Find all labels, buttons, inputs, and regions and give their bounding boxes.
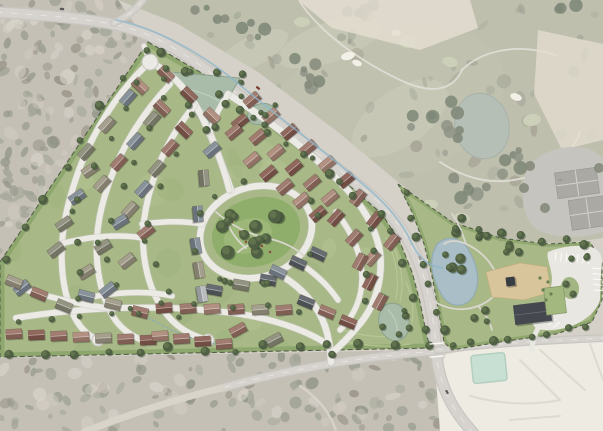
tree-highlight	[388, 228, 392, 232]
tree-highlight	[453, 226, 457, 230]
tree-highlight	[570, 291, 574, 295]
tree-highlight	[425, 281, 429, 285]
tree-highlight	[451, 343, 455, 347]
tree-highlight	[231, 213, 236, 218]
tree-highlight	[212, 194, 215, 197]
tree-highlight	[109, 136, 112, 139]
house	[73, 332, 91, 344]
tree-highlight	[237, 107, 241, 111]
tree-highlight	[337, 179, 341, 183]
crosswalk-mark	[430, 356, 443, 357]
house	[276, 304, 294, 317]
tree-highlight	[233, 350, 236, 353]
tree-highlight	[476, 227, 480, 231]
tree-highlight	[273, 103, 276, 106]
tree-highlight	[250, 221, 257, 228]
tree-highlight	[128, 306, 131, 309]
tree-highlight	[410, 294, 415, 299]
tree-highlight	[192, 249, 196, 253]
tree-highlight	[456, 254, 462, 260]
house	[95, 333, 113, 345]
tree-highlight	[182, 68, 187, 73]
tree-highlight	[269, 211, 276, 218]
tree-highlight	[498, 229, 503, 234]
tree-highlight	[241, 179, 245, 183]
tree-highlight	[3, 256, 7, 260]
tree-highlight	[583, 324, 587, 328]
tree-highlight	[517, 232, 522, 237]
tree-highlight	[77, 314, 80, 317]
tree-highlight	[240, 231, 246, 237]
tree-highlight	[447, 265, 451, 269]
tree-highlight	[124, 106, 127, 109]
tree-highlight	[121, 183, 125, 187]
tree-highlight	[92, 163, 96, 167]
tree-highlight	[76, 296, 79, 299]
tree-highlight	[434, 310, 438, 314]
tree-highlight	[326, 170, 331, 175]
tree-highlight	[505, 337, 509, 341]
tree-highlight	[563, 281, 567, 285]
tree-highlight	[580, 241, 585, 246]
tree-highlight	[197, 211, 201, 215]
tree-highlight	[239, 94, 242, 97]
tree-highlight	[188, 69, 191, 72]
tree-highlight	[164, 343, 169, 348]
courtyard-planting	[549, 292, 552, 295]
tree-highlight	[77, 270, 81, 274]
courtyard-planting	[541, 288, 544, 291]
tree-highlight	[506, 244, 511, 249]
tree-highlight	[544, 332, 548, 336]
park-shrub	[245, 241, 248, 244]
scene-canvas	[0, 0, 603, 431]
tree-highlight	[310, 156, 313, 159]
crosswalk-mark	[430, 343, 443, 344]
house	[204, 303, 222, 316]
tree-highlight	[96, 102, 101, 107]
tree-highlight	[380, 324, 384, 328]
tree-highlight	[315, 213, 318, 216]
tree-highlight	[145, 221, 149, 225]
house	[216, 338, 234, 350]
tree-highlight	[114, 283, 117, 286]
tree-highlight	[239, 71, 243, 75]
tree-highlight	[476, 234, 479, 237]
tree-highlight	[106, 349, 110, 353]
tree-highlight	[186, 102, 190, 106]
tree-highlight	[5, 351, 10, 356]
tree-highlight	[264, 129, 268, 133]
tree-highlight	[297, 343, 302, 348]
tree-highlight	[504, 249, 508, 253]
tree-highlight	[212, 124, 216, 128]
tree-highlight	[371, 248, 375, 252]
tree-highlight	[158, 184, 161, 187]
tree-highlight	[399, 260, 404, 265]
tree-highlight	[349, 193, 353, 197]
tree-highlight	[402, 308, 405, 311]
tree-highlight	[70, 209, 73, 212]
tree-highlight	[218, 277, 221, 280]
tree-highlight	[49, 317, 53, 321]
tree-highlight	[412, 233, 417, 238]
tree-highlight	[301, 152, 305, 156]
tree-highlight	[228, 281, 231, 284]
tree-highlight	[95, 240, 98, 243]
house	[50, 331, 68, 343]
house	[173, 333, 191, 345]
tree-highlight	[251, 115, 254, 118]
tree-highlight	[265, 280, 268, 283]
tree-highlight	[262, 122, 266, 126]
tree-highlight	[231, 305, 234, 308]
house	[152, 330, 170, 342]
car	[60, 8, 65, 11]
house	[117, 334, 135, 346]
tree-highlight	[284, 142, 287, 145]
tree-highlight	[201, 348, 206, 353]
tree-highlight	[144, 48, 148, 52]
tree-highlight	[392, 342, 397, 347]
tree-highlight	[404, 190, 408, 194]
house	[197, 170, 210, 188]
tree-highlight	[217, 222, 224, 229]
tree-highlight	[16, 320, 19, 323]
park-shrub	[269, 251, 272, 254]
tree-highlight	[566, 325, 570, 329]
tree-highlight	[484, 319, 487, 322]
tree-highlight	[216, 91, 220, 95]
tree-highlight	[157, 49, 162, 54]
tree-highlight	[369, 227, 372, 230]
tree-highlight	[323, 341, 328, 346]
tree-highlight	[309, 198, 313, 202]
tree-highlight	[239, 80, 242, 83]
tree-highlight	[484, 233, 488, 237]
tree-highlight	[396, 332, 400, 336]
tree-highlight	[259, 341, 264, 346]
tree-highlight	[137, 350, 141, 354]
tree-highlight	[203, 127, 207, 131]
house	[6, 329, 24, 341]
tree-highlight	[142, 239, 145, 242]
tree-highlight	[22, 224, 26, 228]
tree-highlight	[132, 160, 135, 163]
tree-highlight	[539, 239, 543, 243]
tree-highlight	[39, 196, 44, 201]
tree-highlight	[516, 249, 520, 253]
tree-highlight	[189, 112, 192, 115]
tree-highlight	[584, 255, 588, 259]
tree-highlight	[134, 80, 137, 83]
tree-highlight	[65, 165, 69, 169]
tree-highlight	[441, 326, 446, 331]
tree-highlight	[222, 247, 230, 255]
tree-highlight	[458, 266, 463, 271]
tree-highlight	[192, 302, 195, 305]
courtyard-planting	[538, 276, 541, 279]
tree-highlight	[443, 252, 447, 256]
tree-highlight	[71, 351, 76, 356]
tree-highlight	[263, 113, 266, 116]
tree-highlight	[266, 303, 269, 306]
tree-highlight	[249, 238, 256, 245]
tree-highlight	[354, 340, 359, 345]
cul-de-sac	[142, 54, 158, 70]
tree-highlight	[222, 101, 226, 105]
tree-highlight	[224, 218, 229, 223]
tree-highlight	[408, 215, 412, 219]
tree-highlight	[259, 110, 262, 113]
house	[28, 330, 46, 342]
tree-highlight	[110, 312, 113, 315]
tree-highlight	[563, 236, 567, 240]
tree-highlight	[330, 352, 333, 355]
tree-highlight	[42, 351, 47, 356]
courtyard-planting	[546, 280, 549, 283]
tree-highlight	[471, 315, 475, 319]
tree-highlight	[109, 218, 112, 221]
tree-highlight	[297, 310, 300, 313]
tree-highlight	[161, 96, 164, 99]
house	[194, 336, 212, 348]
tree-highlight	[468, 339, 472, 343]
tree-highlight	[153, 262, 156, 265]
tree-highlight	[159, 301, 162, 304]
tree-highlight	[363, 298, 367, 302]
courtyard-planting	[544, 298, 547, 301]
tree-highlight	[75, 197, 79, 201]
tree-highlight	[482, 307, 487, 312]
tree-highlight	[307, 252, 310, 255]
tree-highlight	[569, 256, 572, 259]
tree-highlight	[163, 66, 167, 70]
tree-highlight	[147, 125, 150, 128]
tree-highlight	[406, 325, 410, 329]
tree-highlight	[162, 77, 165, 80]
tree-highlight	[363, 272, 367, 276]
tree-highlight	[77, 138, 81, 142]
amenity-annex	[505, 276, 515, 286]
tree-highlight	[177, 315, 180, 318]
tree-highlight	[104, 257, 107, 260]
tree-highlight	[420, 262, 424, 266]
tree-highlight	[136, 311, 139, 314]
tree-highlight	[256, 236, 261, 241]
tree-highlight	[378, 211, 382, 215]
tree-highlight	[530, 334, 534, 338]
aerial-site-plan	[0, 0, 603, 431]
house	[228, 303, 246, 316]
tree-highlight	[120, 76, 123, 79]
tree-highlight	[214, 69, 218, 73]
tree-highlight	[423, 326, 427, 330]
tree-highlight	[458, 215, 463, 220]
tree-highlight	[490, 337, 495, 342]
tree-highlight	[166, 289, 169, 292]
tree-highlight	[174, 152, 177, 155]
tree-highlight	[75, 239, 79, 243]
